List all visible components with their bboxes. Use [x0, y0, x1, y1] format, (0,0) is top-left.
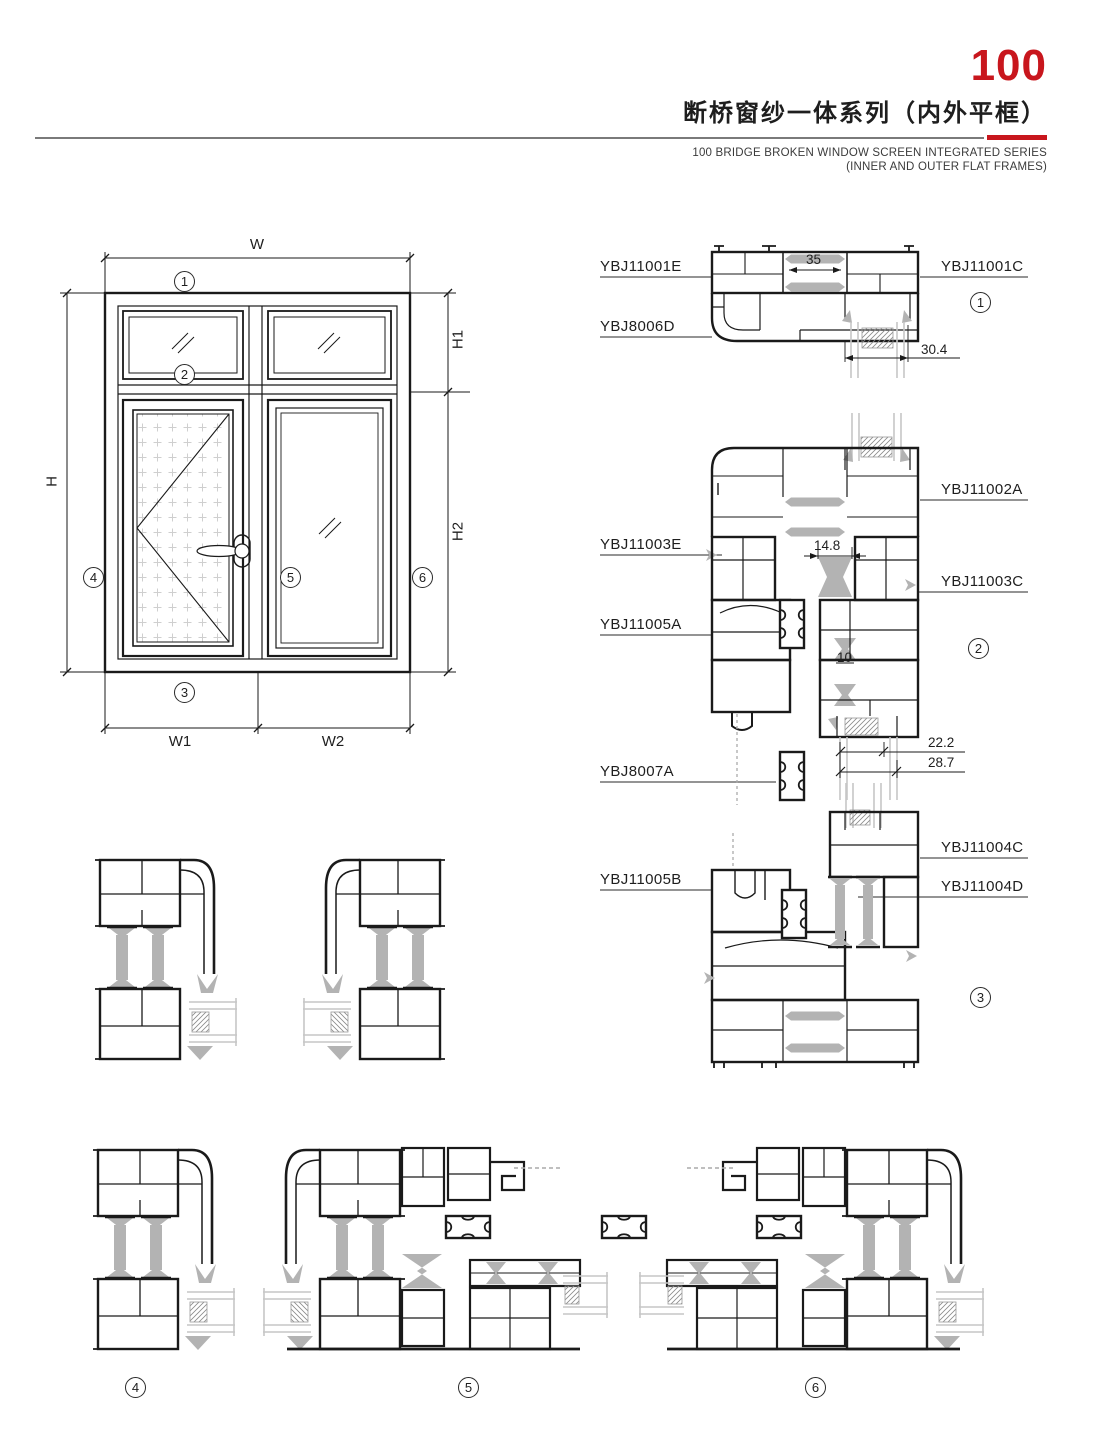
detail-marker-5: 5	[458, 1377, 479, 1398]
elevation-marker-1: 1	[174, 271, 195, 292]
elevation-marker-5: 5	[280, 567, 301, 588]
series-number: 100	[971, 44, 1047, 88]
part-label-ybj8007a: YBJ8007A	[600, 763, 674, 780]
part-label-ybj11001c: YBJ11001C	[941, 258, 1024, 275]
detail-3-section	[704, 752, 918, 1068]
dim-22-2: 22.2	[928, 735, 954, 750]
detail-marker-4: 4	[125, 1377, 146, 1398]
dim-label-h: H	[44, 467, 61, 497]
elevation-marker-6: 6	[412, 567, 433, 588]
catalog-page: 100 断桥窗纱一体系列（内外平框） 100 BRIDGE BROKEN WIN…	[0, 0, 1100, 1448]
dim-10: 10	[837, 650, 852, 665]
series-subtitle-english: 100 BRIDGE BROKEN WINDOW SCREEN INTEGRAT…	[692, 147, 1047, 174]
dim-label-h1: H1	[450, 325, 467, 355]
part-label-ybj11003c: YBJ11003C	[941, 573, 1024, 590]
dim-28-7: 28.7	[928, 755, 954, 770]
detail-5-section	[263, 1148, 580, 1350]
dim-35: 35	[806, 252, 821, 267]
detail-4-section	[93, 1150, 235, 1350]
dim-30-4: 30.4	[921, 342, 947, 357]
dim-label-h2: H2	[450, 517, 467, 547]
detail-1-section	[712, 246, 960, 378]
detail-2-section	[706, 413, 965, 805]
part-label-ybj11004d: YBJ11004D	[941, 878, 1024, 895]
part-label-ybj8006d: YBJ8006D	[600, 318, 675, 335]
series-subtitle-line1: 100 BRIDGE BROKEN WINDOW SCREEN INTEGRAT…	[692, 147, 1047, 161]
technical-drawing-canvas	[0, 0, 1100, 1448]
detail-marker-3: 3	[970, 987, 991, 1008]
part-label-ybj11005a: YBJ11005A	[600, 616, 682, 633]
jamb-sections-pair	[95, 860, 445, 1060]
elevation-marker-2: 2	[174, 364, 195, 385]
part-label-ybj11001e: YBJ11001E	[600, 258, 682, 275]
elevation-marker-3: 3	[174, 682, 195, 703]
dim-label-w: W	[227, 236, 287, 253]
part-label-ybj11003e: YBJ11003E	[600, 536, 682, 553]
header-rule	[35, 135, 1047, 140]
center-connector-pieces	[563, 1216, 684, 1318]
elevation-drawing	[60, 252, 470, 734]
part-label-ybj11004c: YBJ11004C	[941, 839, 1024, 856]
series-subtitle-line2: (INNER AND OUTER FLAT FRAMES)	[692, 161, 1047, 175]
dim-label-w1: W1	[150, 733, 210, 750]
detail-marker-6: 6	[805, 1377, 826, 1398]
detail-6-section	[667, 1148, 984, 1350]
part-label-ybj11005b: YBJ11005B	[600, 871, 682, 888]
detail-marker-1: 1	[970, 292, 991, 313]
series-title-chinese: 断桥窗纱一体系列（内外平框）	[683, 93, 1047, 128]
detail-marker-2: 2	[968, 638, 989, 659]
part-label-ybj11002a: YBJ11002A	[941, 481, 1023, 498]
dim-14-8: 14.8	[814, 538, 840, 553]
dim-label-w2: W2	[303, 733, 363, 750]
elevation-marker-4: 4	[83, 567, 104, 588]
